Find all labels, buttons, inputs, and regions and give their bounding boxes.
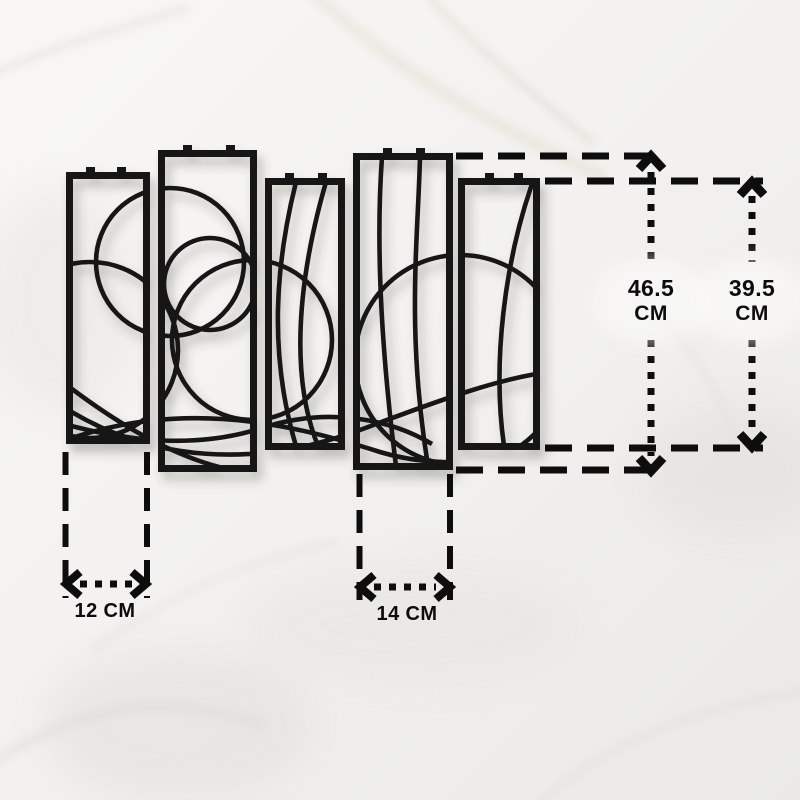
product-photo <box>0 0 800 800</box>
height-value-right: 39.5 <box>729 276 775 302</box>
height-value-left: 46.5 <box>628 276 674 302</box>
width-value-panel1: 12 CM <box>75 601 136 621</box>
width-value-panel4: 14 CM <box>377 604 438 624</box>
product-dimension-image: 46.5 CM 39.5 CM 12 CM 14 CM <box>0 0 800 800</box>
height-unit-left: CM <box>634 302 667 326</box>
height-unit-right: CM <box>735 302 768 326</box>
height-dimension-label-right: 39.5 CM <box>706 271 798 331</box>
width-dimension-label-panel4: 14 CM <box>357 601 457 627</box>
width-dimension-label-panel1: 12 CM <box>55 598 155 624</box>
height-dimension-label-left: 46.5 CM <box>605 271 697 331</box>
